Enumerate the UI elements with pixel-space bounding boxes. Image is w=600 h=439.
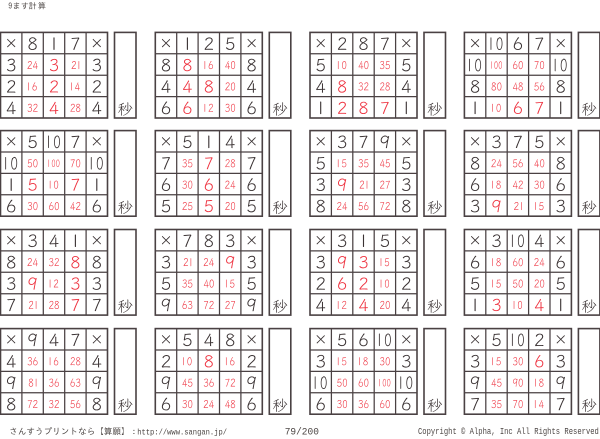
svg-text:Copyright © Alpha, Inc All Rig: Copyright © Alpha, Inc All Rights Reserv… <box>418 426 600 437</box>
svg-text:79/200: 79/200 <box>285 426 319 437</box>
svg-text:http://www.sangan.jp/: http://www.sangan.jp/ <box>137 428 227 438</box>
